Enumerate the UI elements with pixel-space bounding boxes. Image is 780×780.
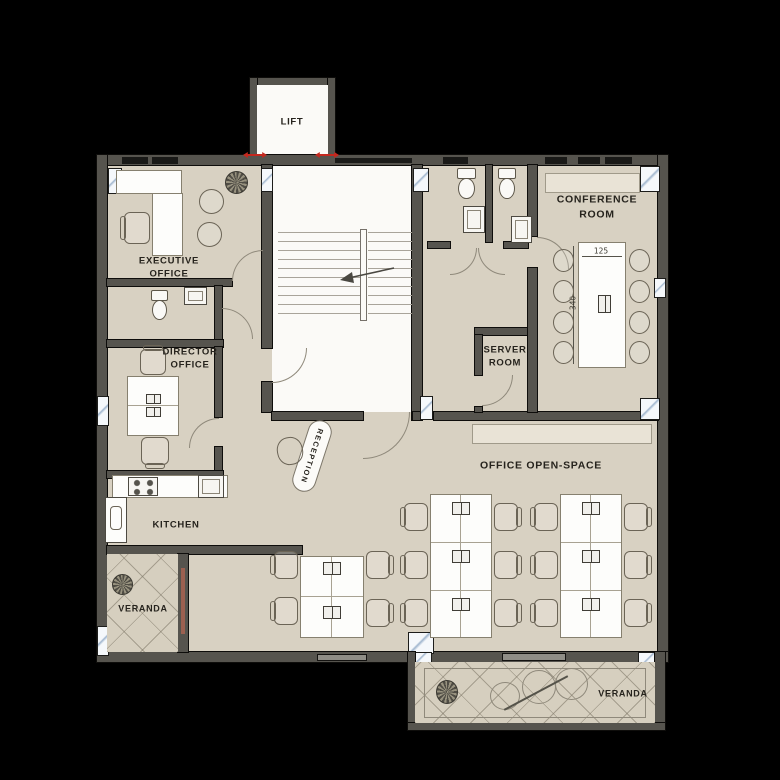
floor-plan: LIFT [0,0,780,780]
desk-seam [301,596,363,597]
monitor [146,407,161,417]
wall-openspace-top [434,412,658,420]
veranda-table [522,670,556,704]
desk-seam [128,405,178,406]
window-glass [97,396,109,426]
plant [112,574,133,595]
room-label-open-space: OFFICE OPEN-SPACE [480,459,602,474]
wall-server-top [475,328,535,335]
wall-wc-divider [486,165,492,242]
conference-chair [629,341,650,364]
office-chair [404,599,428,627]
desk [116,170,182,194]
sink-basin [110,506,122,530]
wall-segment [475,407,482,412]
window-glass [640,166,660,192]
desk [152,193,183,256]
desk-seam [590,495,591,637]
office-chair [274,551,298,579]
monitor [582,502,600,515]
office-chair [366,551,390,579]
toilet [496,168,518,199]
office-chair [624,599,648,627]
wall-stair-right [412,165,422,420]
window [318,655,366,660]
window [605,157,632,164]
office-chair [624,551,648,579]
desk [127,376,179,436]
room-label-kitchen: KITCHEN [152,518,199,531]
office-chair [494,551,518,579]
room-label-server-room: SERVER ROOM [483,344,526,371]
room-label-director-office: DIRECTOR OFFICE [162,346,217,373]
veranda-table [555,668,588,700]
window [122,157,148,164]
plant [225,171,248,194]
monitor [452,502,470,515]
wall-segment [250,78,257,162]
conference-chair [553,249,574,272]
wall-segment [250,78,335,85]
veranda-table [490,682,520,710]
monitor [323,606,341,619]
window-glass [654,278,666,298]
room-label-conference-room: CONFERENCE ROOM [557,192,638,221]
conference-phone [598,295,611,313]
window-glass [640,398,660,420]
kitchen-cabinet [198,475,224,498]
wall-segment [262,382,272,412]
desk-cluster [560,494,622,638]
office-chair [534,551,558,579]
wall-outer-bottom [97,652,668,662]
office-chair [494,503,518,531]
office-chair [124,212,150,244]
office-chair [274,597,298,625]
window [503,654,565,660]
wall-server-left [475,335,482,375]
office-chair [534,599,558,627]
wall-segment [107,546,302,554]
window [443,157,468,164]
dimension-line [582,256,622,257]
toilet [455,168,478,199]
monitor [582,550,600,563]
conference-chair [629,311,650,334]
monitor [452,550,470,563]
guest-chair [197,222,222,247]
glass-door [420,396,433,420]
conference-chair [553,341,574,364]
monitor [146,394,161,404]
wall-segment [272,412,363,420]
window-glass [261,168,273,192]
stove [128,477,158,496]
window-glass [413,168,429,192]
room-label-veranda-right: VERANDA [598,688,647,701]
wall-segment [408,652,415,730]
office-chair [624,503,648,531]
window [545,157,567,164]
wall-segment [262,165,272,348]
wall-segment [328,78,335,162]
office-chair [494,599,518,627]
office-chair [404,551,428,579]
wall-conference-left [528,268,537,412]
dimension-width: 125 [594,247,608,256]
monitor [452,598,470,611]
office-chair [534,503,558,531]
credenza [545,173,640,193]
desk-seam [561,542,621,543]
plant [436,680,458,704]
office-chair [366,599,390,627]
sink-cabinet [511,216,532,243]
office-chair [404,503,428,531]
room-label-lift: LIFT [281,115,304,128]
desk-seam [561,590,621,591]
window [578,157,600,164]
sink-cabinet [184,287,207,305]
conference-chair [629,280,650,303]
room-label-executive-office: EXECUTIVE OFFICE [139,255,199,282]
monitor [323,562,341,575]
wall-segment [655,652,665,730]
toilet [149,290,170,320]
conference-chair [629,249,650,272]
conference-chair [553,311,574,334]
desk-seam [431,542,491,543]
sink-cabinet [463,206,485,233]
window [152,157,178,164]
stair-direction-arrow-icon [322,260,398,288]
desk-seam [431,590,491,591]
veranda-door [181,568,185,634]
desk-seam [460,495,461,637]
wall-segment [215,286,222,347]
office-chair [141,437,169,465]
desk-cluster [430,494,492,638]
credenza [472,424,652,444]
wall-segment [428,242,450,248]
wall-segment [408,723,665,730]
conference-chair [553,280,574,303]
room-label-veranda-left: VERANDA [118,603,167,616]
monitor [582,598,600,611]
guest-chair [199,189,224,214]
stairwell-glazing [335,158,412,163]
